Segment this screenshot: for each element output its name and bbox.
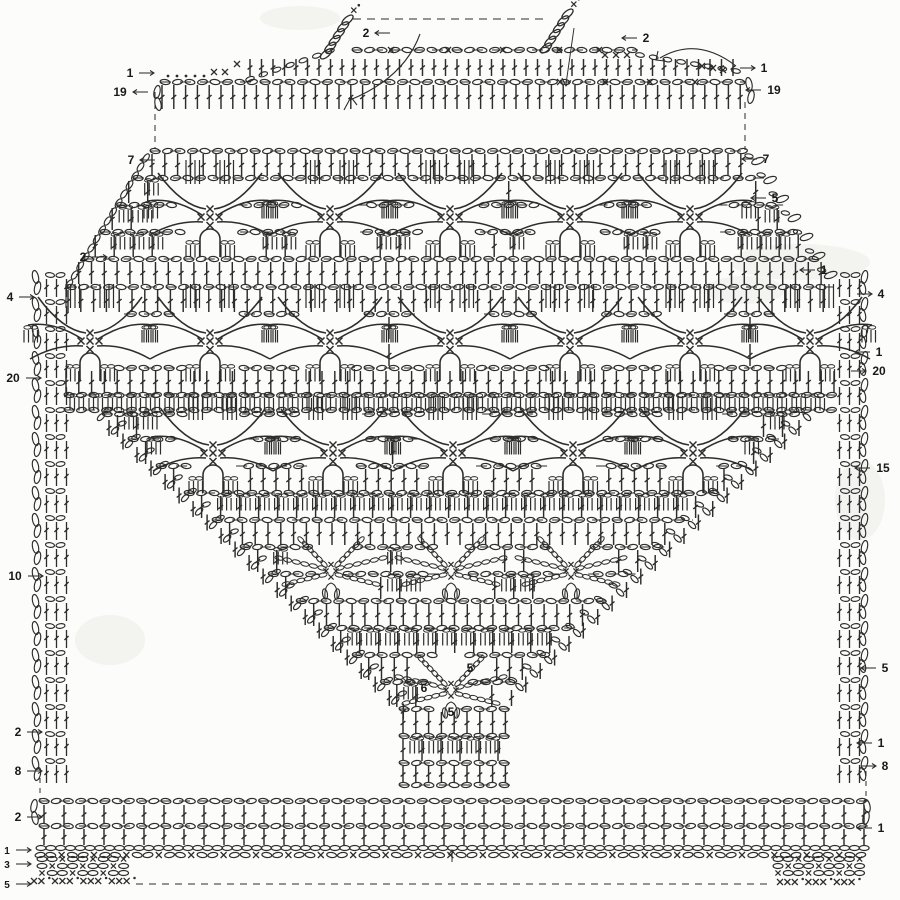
svg-text:5: 5 xyxy=(772,191,779,205)
svg-text:1: 1 xyxy=(876,345,883,359)
svg-text:8: 8 xyxy=(15,764,22,778)
svg-text:3: 3 xyxy=(4,860,10,871)
svg-text:2: 2 xyxy=(15,810,22,824)
svg-text:1: 1 xyxy=(4,846,10,857)
svg-text:4: 4 xyxy=(878,287,885,301)
svg-text:1: 1 xyxy=(127,66,134,80)
svg-text:20: 20 xyxy=(6,371,20,385)
svg-text:1: 1 xyxy=(878,821,885,835)
svg-text:19: 19 xyxy=(767,83,781,97)
svg-text:6: 6 xyxy=(421,681,428,695)
svg-text:5: 5 xyxy=(467,661,474,675)
svg-text:2: 2 xyxy=(363,26,370,40)
svg-text:7: 7 xyxy=(763,152,770,166)
svg-text:20: 20 xyxy=(872,364,886,378)
svg-text:7: 7 xyxy=(128,153,135,167)
svg-text:1: 1 xyxy=(761,61,768,75)
svg-text:5: 5 xyxy=(4,880,10,891)
svg-text:5: 5 xyxy=(448,705,455,719)
svg-text:15: 15 xyxy=(876,461,890,475)
svg-text:19: 19 xyxy=(113,85,127,99)
svg-text:5: 5 xyxy=(882,661,889,675)
svg-text:2: 2 xyxy=(15,725,22,739)
svg-text:2: 2 xyxy=(643,31,650,45)
svg-text:10: 10 xyxy=(8,569,22,583)
svg-text:1: 1 xyxy=(821,263,828,277)
svg-text:2: 2 xyxy=(80,250,87,264)
svg-text:1: 1 xyxy=(878,736,885,750)
svg-text:4: 4 xyxy=(7,290,14,304)
svg-text:8: 8 xyxy=(882,759,889,773)
